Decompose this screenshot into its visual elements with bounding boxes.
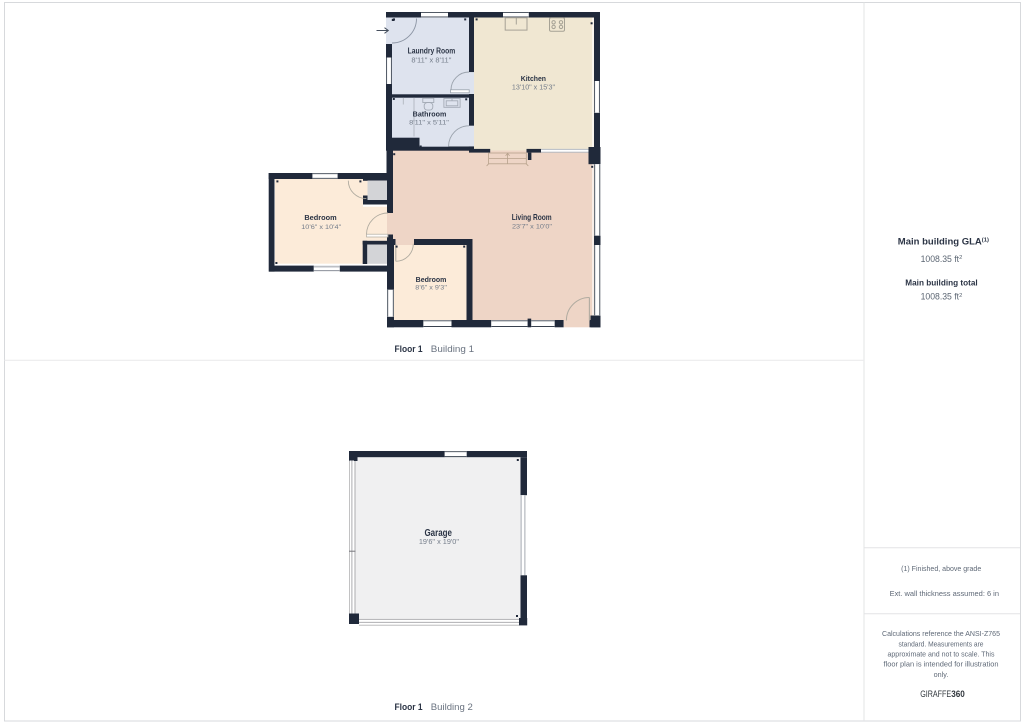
svg-text:Bathroom: Bathroom <box>413 112 447 119</box>
svg-text:floor plan is intended for ill: floor plan is intended for illustration <box>884 660 999 669</box>
svg-text:8'11" x 8'11": 8'11" x 8'11" <box>411 57 452 64</box>
svg-text:Main building GLA(1): Main building GLA(1) <box>898 237 989 247</box>
svg-text:Kitchen: Kitchen <box>521 74 546 83</box>
svg-text:standard. Measurements are: standard. Measurements are <box>899 639 984 648</box>
svg-text:23'7" x 10'0": 23'7" x 10'0" <box>512 223 553 230</box>
svg-text:Main building total: Main building total <box>905 277 977 287</box>
svg-text:Floor 1: Floor 1 <box>395 702 424 713</box>
svg-text:GIRAFFE360: GIRAFFE360 <box>920 689 965 699</box>
svg-text:19'6" x 19'0": 19'6" x 19'0" <box>419 539 460 546</box>
svg-text:Living Room: Living Room <box>512 213 552 222</box>
svg-text:13'10" x 15'3": 13'10" x 15'3" <box>512 84 556 91</box>
svg-text:Calculations reference the ANS: Calculations reference the ANSI-Z765 <box>882 629 1000 638</box>
svg-text:Building 1: Building 1 <box>431 344 474 355</box>
svg-text:Bedroom: Bedroom <box>304 213 337 222</box>
svg-text:Ext. wall thickness assumed: 6: Ext. wall thickness assumed: 6 in <box>890 589 999 598</box>
svg-text:Floor 1: Floor 1 <box>395 344 424 355</box>
svg-text:1008.35 ft2: 1008.35 ft2 <box>921 292 963 302</box>
svg-text:Laundry Room: Laundry Room <box>408 47 456 56</box>
svg-text:approximate and not to scale.: approximate and not to scale. This <box>888 650 995 659</box>
svg-text:(1) Finished, above grade: (1) Finished, above grade <box>901 565 981 573</box>
svg-text:8'6" x 9'3": 8'6" x 9'3" <box>415 285 447 292</box>
svg-text:Building 2: Building 2 <box>431 702 473 713</box>
svg-text:only.: only. <box>934 670 949 679</box>
svg-text:Bedroom: Bedroom <box>416 275 447 284</box>
svg-text:Garage: Garage <box>424 528 452 539</box>
svg-text:10'6" x 10'4": 10'6" x 10'4" <box>301 224 342 231</box>
svg-text:8'11" x 5'11": 8'11" x 5'11" <box>409 120 449 127</box>
svg-text:1008.35 ft2: 1008.35 ft2 <box>921 254 963 264</box>
